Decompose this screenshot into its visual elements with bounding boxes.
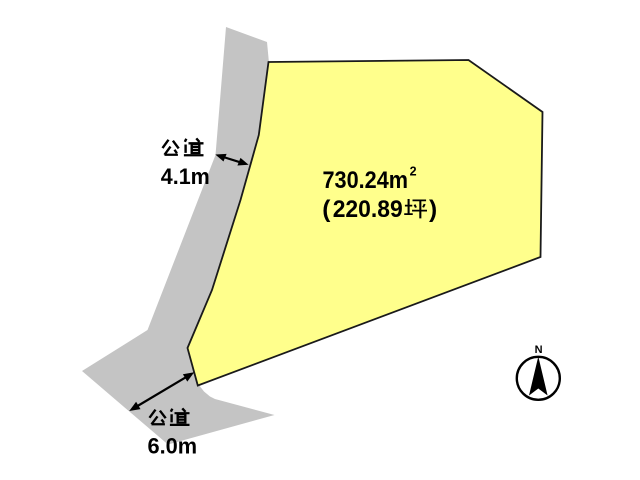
- svg-text:(: (: [322, 196, 331, 223]
- svg-text:N: N: [535, 344, 543, 356]
- svg-text:2: 2: [410, 165, 417, 179]
- svg-text:4.1m: 4.1m: [161, 164, 210, 189]
- svg-text:220.89: 220.89: [333, 196, 403, 223]
- svg-text:6.0m: 6.0m: [148, 433, 198, 458]
- svg-text:730.24m: 730.24m: [323, 167, 409, 194]
- svg-text:): ): [429, 196, 437, 223]
